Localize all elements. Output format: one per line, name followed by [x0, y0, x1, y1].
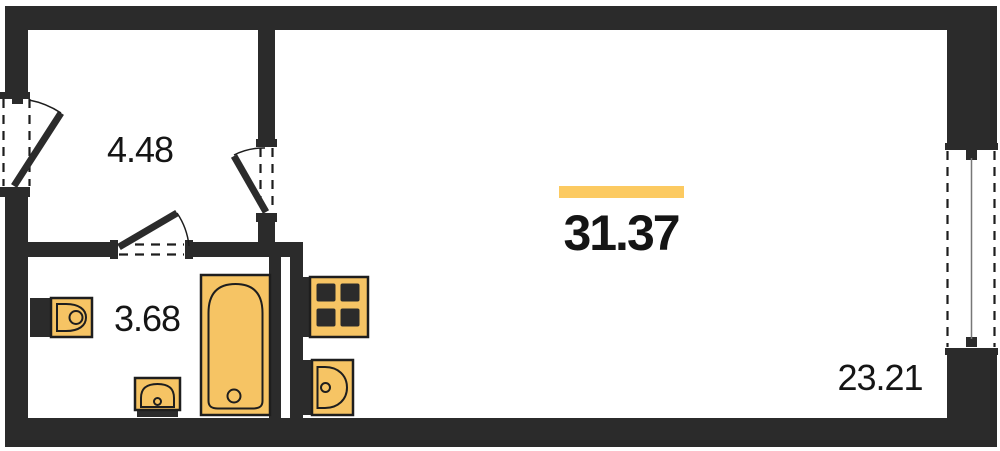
entrance-door-leaf: [14, 113, 61, 186]
bathroom-area-label: 3.68: [114, 298, 180, 340]
stove-4-burner: [303, 277, 368, 337]
sink-small: [135, 378, 180, 417]
toilet-cistern: [30, 298, 51, 337]
floor-plan: 4.48 3.68 31.37 23.21: [0, 0, 1000, 451]
door-hallway-to-bathroom: [119, 213, 189, 255]
door-hallway-to-room: [234, 148, 273, 212]
living-area-label: 23.21: [837, 357, 922, 399]
stove-burner-2: [341, 284, 360, 302]
window: [948, 151, 995, 347]
kitchen-sink-backing: [303, 360, 312, 415]
entrance-door: [4, 99, 62, 186]
total-area-accent-bar: [559, 186, 684, 198]
total-area-label: 31.37: [563, 204, 678, 262]
kitchen-sink: [303, 360, 353, 415]
bathtub: [201, 275, 270, 415]
stove-burner-1: [317, 284, 336, 302]
stove-burner-4: [341, 309, 360, 327]
bath-door-swing-arc: [177, 213, 189, 246]
stove-burner-3: [317, 309, 336, 327]
hallway-area-label: 4.48: [107, 129, 173, 171]
bath-door-leaf: [119, 213, 177, 247]
entrance-door-swing-arc: [29, 100, 61, 113]
toilet: [30, 298, 92, 337]
